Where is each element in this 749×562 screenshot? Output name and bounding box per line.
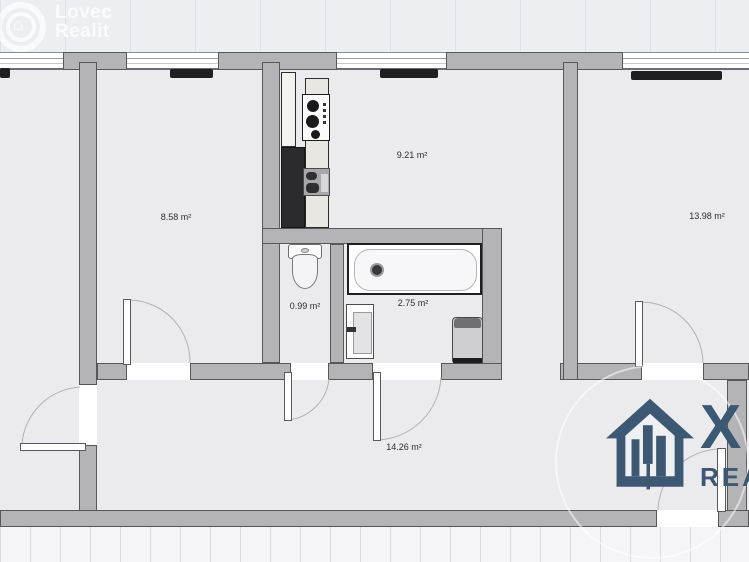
bathtub xyxy=(347,243,482,295)
tall-cabinet xyxy=(281,72,296,147)
burner-icon xyxy=(307,100,319,112)
door-leaf-bedroom-right xyxy=(635,301,643,367)
door-leaf-wc xyxy=(284,372,292,421)
room-area-label: 9.21 m² xyxy=(397,150,428,160)
stove xyxy=(302,94,330,141)
room-area-label: 8.58 m² xyxy=(161,212,192,222)
room-area-label: 2.75 m² xyxy=(398,298,429,308)
room-area-label: 14.26 m² xyxy=(386,442,422,452)
agency-logo-subtext: REA xyxy=(700,462,749,493)
radiator-bedroom-left xyxy=(170,69,213,78)
toilet-bowl xyxy=(292,254,318,289)
door-leaf-bathroom xyxy=(373,372,381,441)
watermark-brand-line2: Realit xyxy=(55,22,110,41)
watermark-brand-line1: Lovec xyxy=(55,3,112,22)
radiator-bedroom-right xyxy=(631,71,722,80)
washbasin xyxy=(346,304,374,359)
water-heater xyxy=(452,317,483,364)
water-heater-cap xyxy=(454,318,481,328)
faucet-icon xyxy=(347,327,356,332)
kitchen-sink xyxy=(303,168,330,196)
sink-bowl-icon xyxy=(306,183,319,193)
radiator-kitchen xyxy=(380,69,438,78)
washbasin-bowl xyxy=(353,312,372,354)
door-leaf-bedroom-left xyxy=(123,299,131,365)
agency-house-icon xyxy=(606,398,694,492)
agency-logo-letter: X xyxy=(700,392,741,463)
sink-drainboard xyxy=(321,174,328,192)
room-area-label: 0.99 m² xyxy=(290,301,321,311)
sink-bowl-icon xyxy=(306,172,317,180)
toilet-button xyxy=(301,248,309,253)
fridge-cabinet xyxy=(281,147,305,228)
room-area-label: 13.98 m² xyxy=(689,211,725,221)
watermark-house-icon: ⌂ xyxy=(13,15,23,35)
floorplan-canvas: 8.58 m² 9.21 m² 13.98 m² 0.99 m² 2.75 m²… xyxy=(0,0,749,562)
burner-icon xyxy=(306,115,319,128)
burner-icon xyxy=(311,130,320,139)
water-heater-base xyxy=(453,358,482,363)
door-leaf-left-room xyxy=(20,443,86,451)
stove-knobs-icon xyxy=(323,103,326,127)
radiator-left-stub xyxy=(0,68,10,78)
bathtub-drain-icon xyxy=(370,263,384,277)
